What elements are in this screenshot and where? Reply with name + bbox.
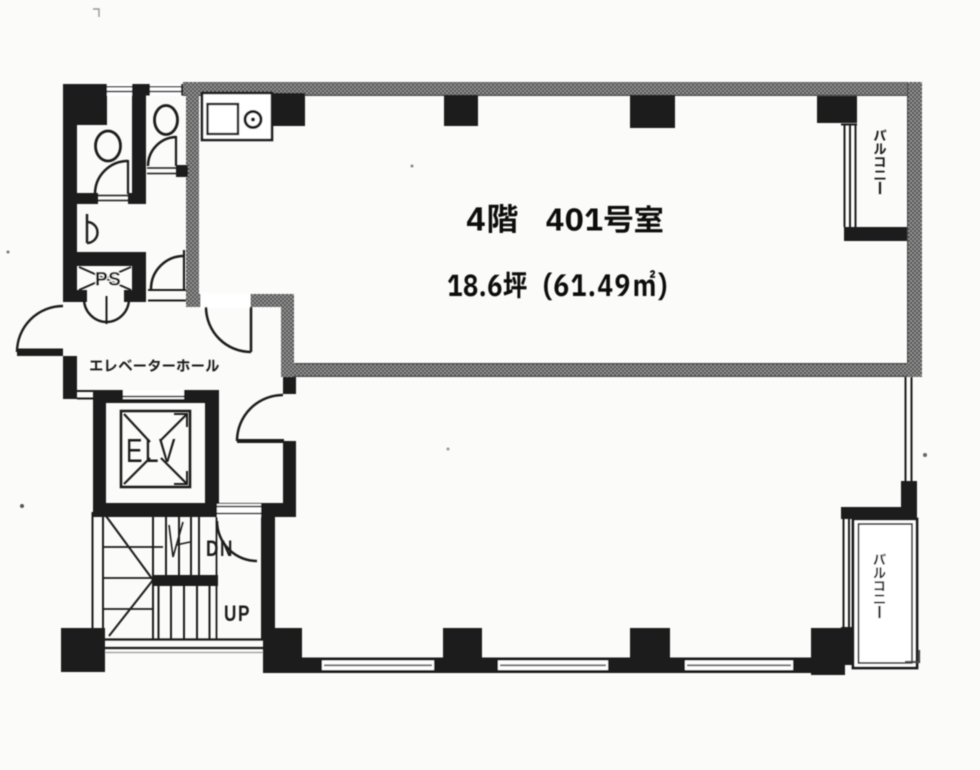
svg-text:PS: PS (95, 270, 121, 291)
svg-text:UP: UP (224, 602, 251, 627)
svg-text:ELV: ELV (126, 434, 178, 470)
svg-text:DN: DN (206, 537, 234, 562)
